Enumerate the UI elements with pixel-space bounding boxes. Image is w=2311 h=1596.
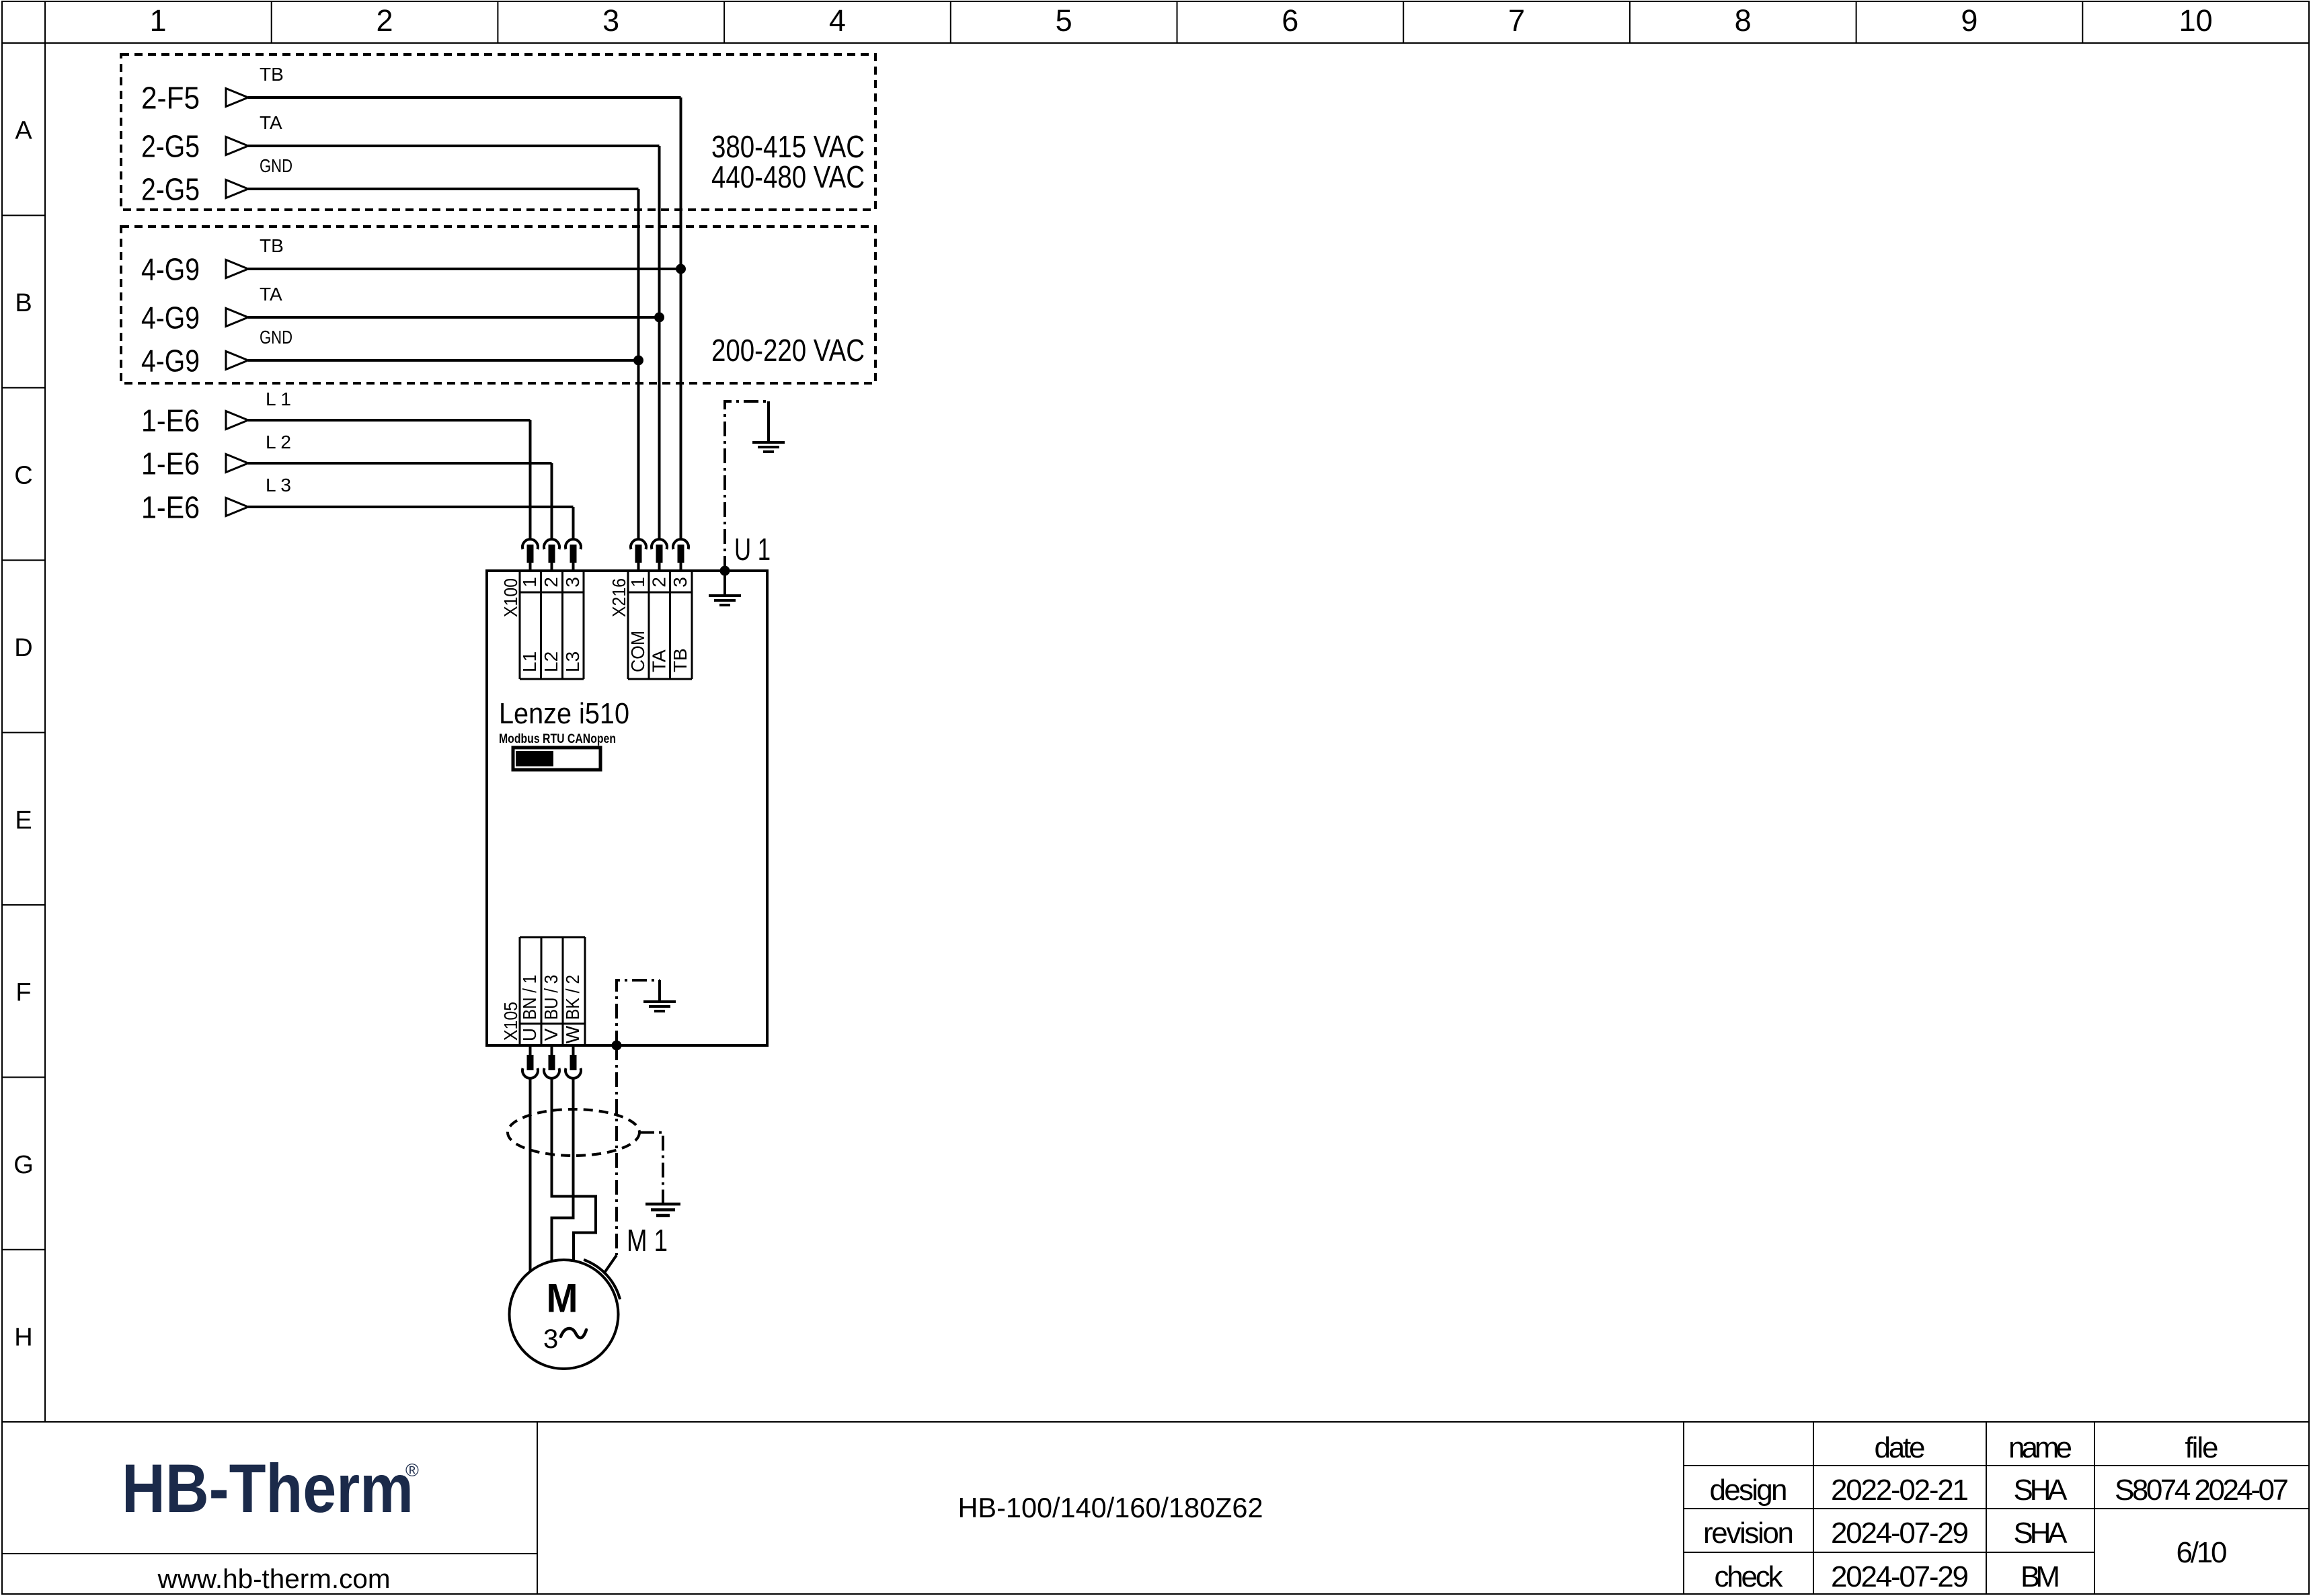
svg-text:M 1: M 1 <box>627 1223 668 1258</box>
svg-text:7: 7 <box>1508 3 1525 38</box>
svg-text:H: H <box>14 1324 32 1352</box>
svg-text:1: 1 <box>519 577 540 588</box>
svg-text:G: G <box>13 1151 34 1179</box>
svg-text:10: 10 <box>2179 3 2213 38</box>
svg-text:HB-100/140/160/180Z62: HB-100/140/160/180Z62 <box>958 1492 1263 1523</box>
svg-text:BM: BM <box>2021 1560 2060 1593</box>
svg-text:E: E <box>15 806 32 834</box>
svg-text:2024-07-29: 2024-07-29 <box>1831 1517 1969 1550</box>
svg-text:5: 5 <box>1056 3 1072 38</box>
svg-text:BN / 1: BN / 1 <box>519 975 540 1020</box>
svg-text:4-G9: 4-G9 <box>141 252 200 287</box>
svg-text:X100: X100 <box>500 578 521 617</box>
svg-text:3: 3 <box>670 577 691 588</box>
svg-text:TB: TB <box>670 648 691 672</box>
svg-text:SHA: SHA <box>2014 1517 2068 1550</box>
svg-text:2-G5: 2-G5 <box>141 129 200 164</box>
svg-text:2022-02-21: 2022-02-21 <box>1831 1474 1969 1507</box>
svg-text:file: file <box>2185 1431 2219 1464</box>
svg-text:design: design <box>1710 1474 1788 1507</box>
svg-text:W: W <box>562 1025 583 1043</box>
svg-text:U 1: U 1 <box>734 532 771 567</box>
svg-text:6/10: 6/10 <box>2177 1536 2228 1569</box>
svg-text:L 2: L 2 <box>266 432 291 452</box>
svg-text:8: 8 <box>1735 3 1752 38</box>
svg-text:S8074 2024-07: S8074 2024-07 <box>2115 1474 2289 1507</box>
svg-text:revision: revision <box>1703 1517 1794 1550</box>
svg-text:2024-07-29: 2024-07-29 <box>1831 1560 1969 1593</box>
svg-text:1: 1 <box>627 577 648 588</box>
svg-text:SHA: SHA <box>2014 1474 2068 1507</box>
svg-text:www.hb-therm.com: www.hb-therm.com <box>157 1564 390 1594</box>
svg-text:TB: TB <box>260 235 284 256</box>
svg-text:TA: TA <box>260 112 282 133</box>
svg-text:2: 2 <box>376 3 393 38</box>
svg-text:3: 3 <box>562 577 583 588</box>
svg-text:X216: X216 <box>609 578 629 617</box>
svg-text:GND: GND <box>260 155 292 176</box>
svg-text:4-G9: 4-G9 <box>141 344 200 378</box>
svg-text:3: 3 <box>602 3 619 38</box>
svg-text:TA: TA <box>649 649 670 672</box>
svg-text:Modbus RTU CANopen: Modbus RTU CANopen <box>499 731 616 746</box>
svg-text:4: 4 <box>829 3 846 38</box>
svg-text:BU / 3: BU / 3 <box>541 975 561 1020</box>
svg-text:L 1: L 1 <box>266 389 291 409</box>
svg-text:200-220 VAC: 200-220 VAC <box>711 333 865 368</box>
svg-text:9: 9 <box>1961 3 1977 38</box>
svg-text:1: 1 <box>149 3 166 38</box>
svg-text:6: 6 <box>1282 3 1298 38</box>
svg-text:L3: L3 <box>562 651 583 672</box>
svg-text:4-G9: 4-G9 <box>141 301 200 335</box>
svg-text:X105: X105 <box>500 1002 521 1041</box>
svg-text:Lenze i510: Lenze i510 <box>499 697 629 730</box>
svg-text:1-E6: 1-E6 <box>141 403 200 438</box>
svg-text:HB-Therm: HB-Therm <box>122 1450 414 1527</box>
svg-text:L2: L2 <box>541 651 561 672</box>
svg-text:COM: COM <box>627 631 648 672</box>
svg-text:1-E6: 1-E6 <box>141 490 200 525</box>
svg-text:D: D <box>14 634 32 662</box>
svg-text:BK / 2: BK / 2 <box>562 975 583 1020</box>
svg-text:GND: GND <box>260 327 292 348</box>
svg-text:check: check <box>1715 1560 1784 1593</box>
svg-text:2: 2 <box>541 577 561 588</box>
svg-text:440-480 VAC: 440-480 VAC <box>711 159 865 194</box>
svg-text:1-E6: 1-E6 <box>141 446 200 481</box>
svg-text:TA: TA <box>260 284 282 305</box>
svg-text:F: F <box>15 979 31 1007</box>
svg-text:2-G5: 2-G5 <box>141 172 200 207</box>
svg-text:L1: L1 <box>519 651 540 672</box>
svg-text:M: M <box>547 1276 578 1321</box>
svg-text:TB: TB <box>260 64 284 85</box>
svg-text:®: ® <box>405 1460 419 1480</box>
svg-text:A: A <box>15 117 32 145</box>
svg-text:L 3: L 3 <box>266 475 291 495</box>
svg-text:U: U <box>519 1028 540 1041</box>
svg-text:3: 3 <box>543 1324 558 1354</box>
svg-text:2-F5: 2-F5 <box>141 81 200 116</box>
svg-text:V: V <box>541 1028 561 1041</box>
svg-text:B: B <box>15 289 32 317</box>
svg-text:C: C <box>14 462 32 490</box>
svg-text:date: date <box>1875 1431 1926 1464</box>
svg-text:name: name <box>2008 1431 2072 1464</box>
svg-text:2: 2 <box>649 577 670 588</box>
